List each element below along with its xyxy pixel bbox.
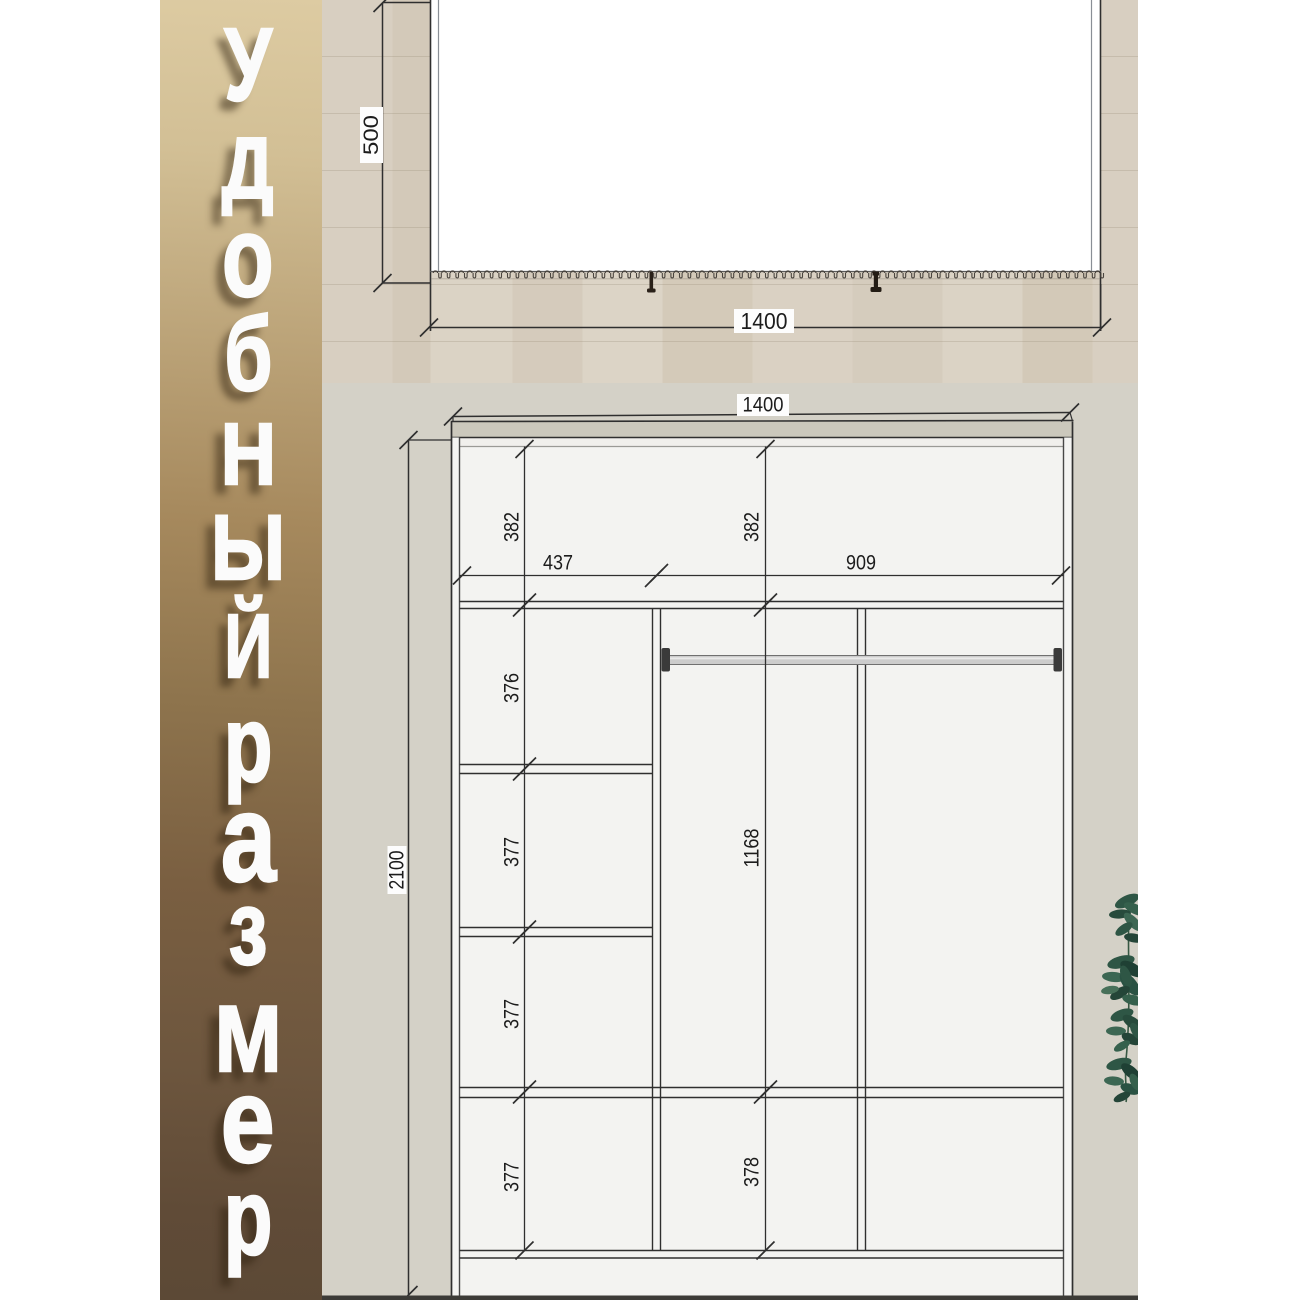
svg-text:377: 377: [501, 837, 524, 867]
svg-text:378: 378: [741, 1157, 764, 1187]
svg-text:382: 382: [741, 512, 764, 542]
svg-text:909: 909: [846, 552, 876, 575]
svg-text:376: 376: [501, 673, 524, 703]
svg-text:382: 382: [501, 512, 524, 542]
svg-text:1400: 1400: [743, 394, 784, 417]
svg-text:1400: 1400: [741, 308, 788, 334]
svg-text:500: 500: [360, 115, 383, 155]
svg-text:437: 437: [543, 552, 573, 575]
svg-text:377: 377: [501, 999, 524, 1029]
svg-text:377: 377: [501, 1162, 524, 1192]
svg-text:1168: 1168: [741, 829, 764, 868]
svg-text:2100: 2100: [386, 851, 409, 890]
